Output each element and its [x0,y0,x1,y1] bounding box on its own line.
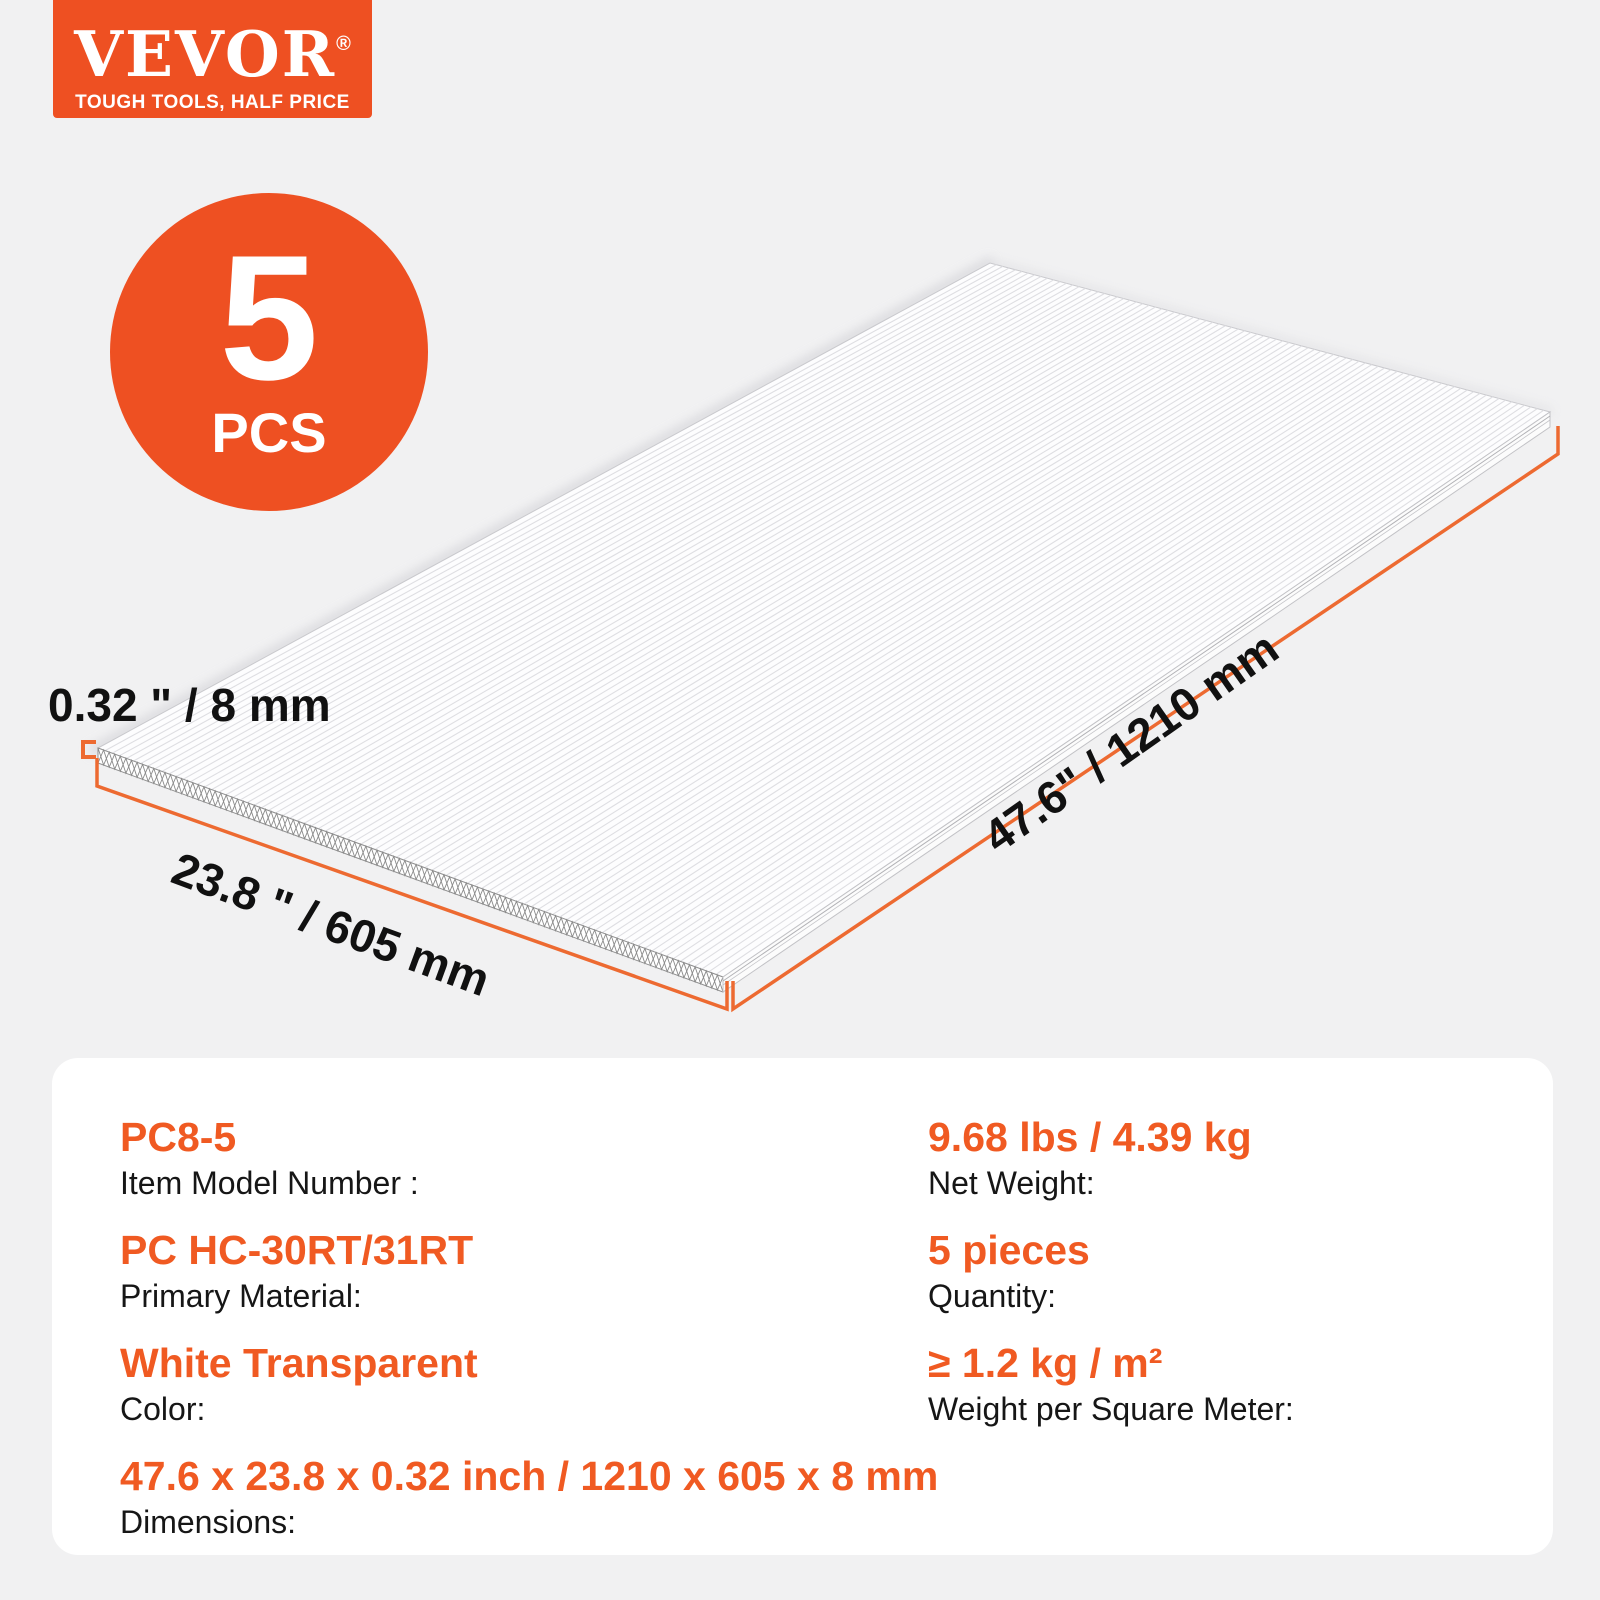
spec-row-weight-per-sqm: ≥ 1.2 kg / m² Weight per Square Meter: [928,1340,1294,1429]
spec-value-dimensions: 47.6 x 23.8 x 0.32 inch / 1210 x 605 x 8… [120,1453,938,1499]
spec-value-material: PC HC-30RT/31RT [120,1227,938,1273]
spec-panel: PC8-5 Item Model Number : PC HC-30RT/31R… [52,1058,1553,1555]
spec-label-quantity: Quantity: [928,1276,1294,1316]
spec-label-color: Color: [120,1389,938,1429]
badge-unit: PCS [211,405,326,461]
spec-label-model: Item Model Number : [120,1163,938,1203]
spec-label-weight-per-sqm: Weight per Square Meter: [928,1389,1294,1429]
spec-label-dimensions: Dimensions: [120,1502,938,1542]
spec-row-color: White Transparent Color: [120,1340,938,1429]
spec-column-left: PC8-5 Item Model Number : PC HC-30RT/31R… [120,1114,938,1566]
thickness-dimension-label: 0.32 " / 8 mm [48,680,331,730]
spec-column-right: 9.68 lbs / 4.39 kg Net Weight: 5 pieces … [928,1114,1294,1453]
brand-wordmark: VEVOR [74,17,336,91]
spec-row-quantity: 5 pieces Quantity: [928,1227,1294,1316]
vevor-logo: VEVOR® TOUGH TOOLS, HALF PRICE [53,0,372,118]
badge-count: 5 [220,243,319,393]
spec-value-model: PC8-5 [120,1114,938,1160]
registered-trademark-icon: ® [336,33,351,55]
quantity-badge: 5 PCS [110,193,428,511]
brand-name: VEVOR® [53,13,372,86]
spec-value-color: White Transparent [120,1340,938,1386]
spec-value-quantity: 5 pieces [928,1227,1294,1273]
spec-row-material: PC HC-30RT/31RT Primary Material: [120,1227,938,1316]
spec-label-material: Primary Material: [120,1276,938,1316]
spec-value-weight-per-sqm: ≥ 1.2 kg / m² [928,1340,1294,1386]
spec-row-model: PC8-5 Item Model Number : [120,1114,938,1203]
spec-value-net-weight: 9.68 lbs / 4.39 kg [928,1114,1294,1160]
spec-row-dimensions: 47.6 x 23.8 x 0.32 inch / 1210 x 605 x 8… [120,1453,938,1542]
brand-tagline: TOUGH TOOLS, HALF PRICE [53,92,372,114]
product-infographic: VEVOR® TOUGH TOOLS, HALF PRICE 5 PCS 0.3… [0,0,1600,1600]
spec-row-net-weight: 9.68 lbs / 4.39 kg Net Weight: [928,1114,1294,1203]
spec-label-net-weight: Net Weight: [928,1163,1294,1203]
